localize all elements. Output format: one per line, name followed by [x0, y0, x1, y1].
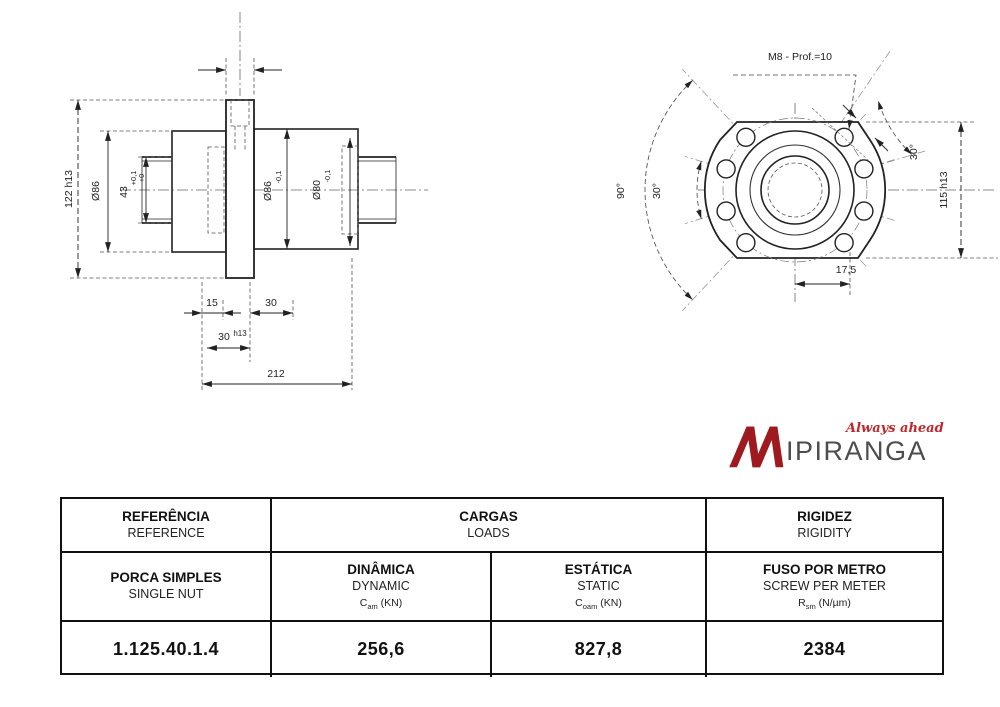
subheader-static: ESTÁTICA STATIC Coam (KN)	[492, 553, 707, 622]
dim-spigot-od: Ø80 -0,1	[311, 138, 350, 246]
technical-drawing: 122 h13 Ø86 43 +0,1 +0 Ø86 -0,1 Ø80	[0, 0, 1000, 420]
dim-flange-thickness-label: 30	[218, 331, 230, 343]
dim-bore-tol-lower: +0	[137, 174, 146, 183]
dim-body-od-label: Ø86	[262, 181, 274, 201]
dim-hole-offset-label: 17,5	[836, 264, 857, 276]
angle-right-label: 30°	[908, 144, 920, 160]
dim-spigot-od-label: Ø80	[311, 180, 323, 200]
value-dynamic: 256,6	[272, 622, 492, 677]
dim-total-length-label: 212	[267, 368, 285, 380]
dim-spigot-od-tol: -0,1	[323, 170, 332, 183]
datasheet-page: 122 h13 Ø86 43 +0,1 +0 Ø86 -0,1 Ø80	[0, 0, 1000, 707]
value-stiffness: 2384	[707, 622, 942, 677]
dim-flange-thickness-tol: h13	[233, 329, 247, 338]
dim-gap-label: 30	[265, 297, 277, 309]
dim-flange-height-label: 122 h13	[63, 170, 75, 208]
subheader-dynamic: DINÂMICA DYNAMIC Cam (KN)	[272, 553, 492, 622]
dynamic-symbol: Cam (KN)	[360, 597, 403, 611]
angle-inner-label: 30°	[651, 183, 663, 199]
subheader-stiffness: FUSO POR METRO SCREW PER METER Rsm (N/µm…	[707, 553, 942, 622]
dim-across-flats-label: 115 h13	[938, 171, 950, 208]
centerlines	[120, 12, 428, 190]
dim-offset-label: 15	[206, 297, 218, 309]
header-loads: CARGAS LOADS	[272, 499, 707, 553]
thread-note-label: M8 - Prof.=10	[768, 51, 832, 63]
dim-body-od: Ø86 -0,1	[262, 129, 287, 249]
flange-outline	[705, 122, 885, 258]
dim-bore-label: 43	[118, 186, 130, 198]
spec-table: REFERÊNCIA REFERENCE CARGAS LOADS RIGIDE…	[60, 497, 944, 675]
value-static: 827,8	[492, 622, 707, 677]
stiffness-symbol: Rsm (N/µm)	[798, 597, 851, 611]
logo-brand: IPIRANGA	[786, 436, 927, 467]
dim-body-od-tol: -0,1	[274, 171, 283, 184]
logo-tagline: Always ahead	[846, 421, 944, 436]
dim-left-od-label: Ø86	[90, 181, 102, 201]
value-reference: 1.125.40.1.4	[62, 622, 272, 677]
header-rigidity: RIGIDEZ RIGIDITY	[707, 499, 942, 553]
static-symbol: Coam (KN)	[575, 597, 622, 611]
angle-outer-label: 90°	[615, 183, 627, 199]
header-reference: REFERÊNCIA REFERENCE	[62, 499, 272, 553]
side-view: 122 h13 Ø86 43 +0,1 +0 Ø86 -0,1 Ø80	[63, 12, 428, 390]
company-logo: Always ahead IPIRANGA	[728, 420, 948, 478]
logo-mark	[728, 420, 786, 472]
dim-left-od: Ø86	[90, 131, 172, 252]
subheader-product: PORCA SIMPLES SINGLE NUT	[62, 553, 272, 622]
front-view: M8 - Prof.=10 90° 30° 30° 115 h13	[615, 50, 998, 311]
